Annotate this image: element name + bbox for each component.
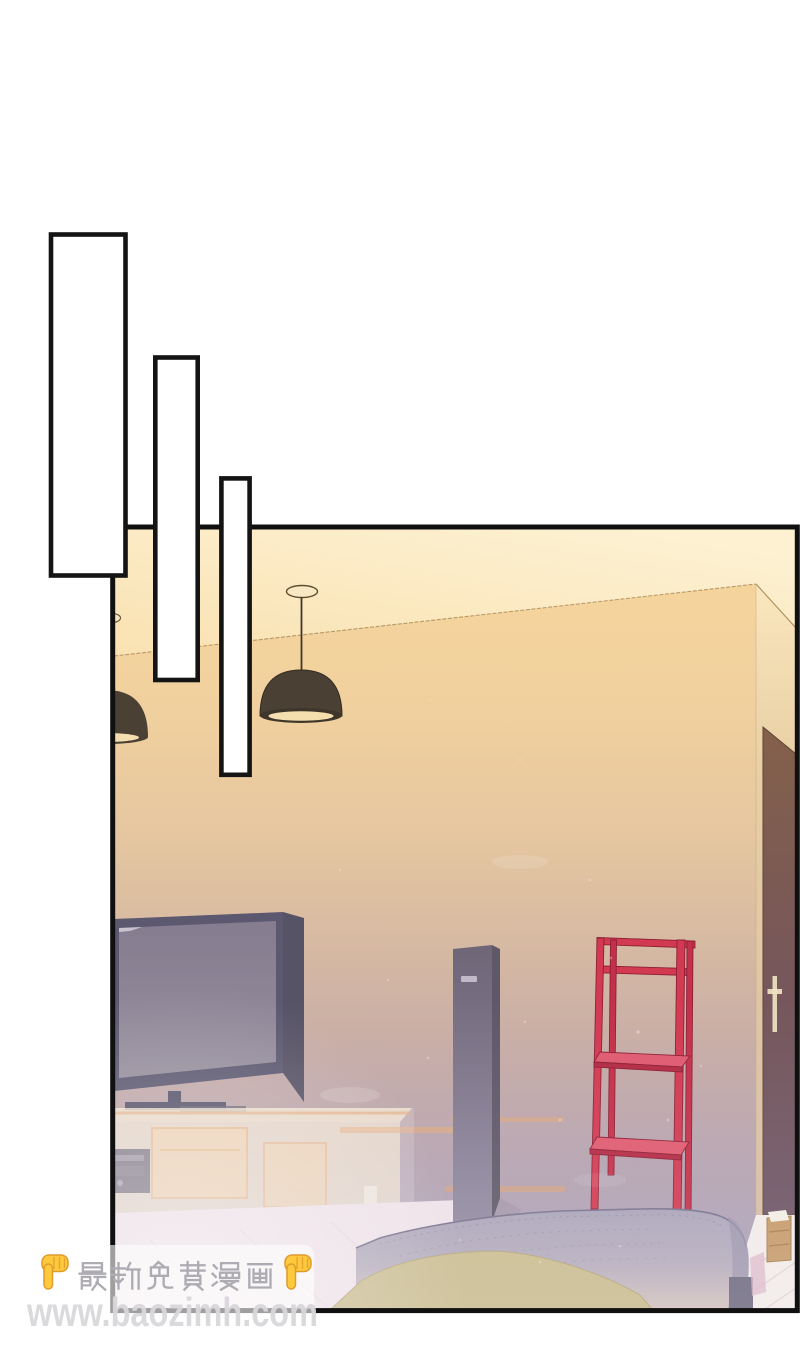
svg-text:www.baozimh.com: www.baozimh.com [26,1289,318,1335]
